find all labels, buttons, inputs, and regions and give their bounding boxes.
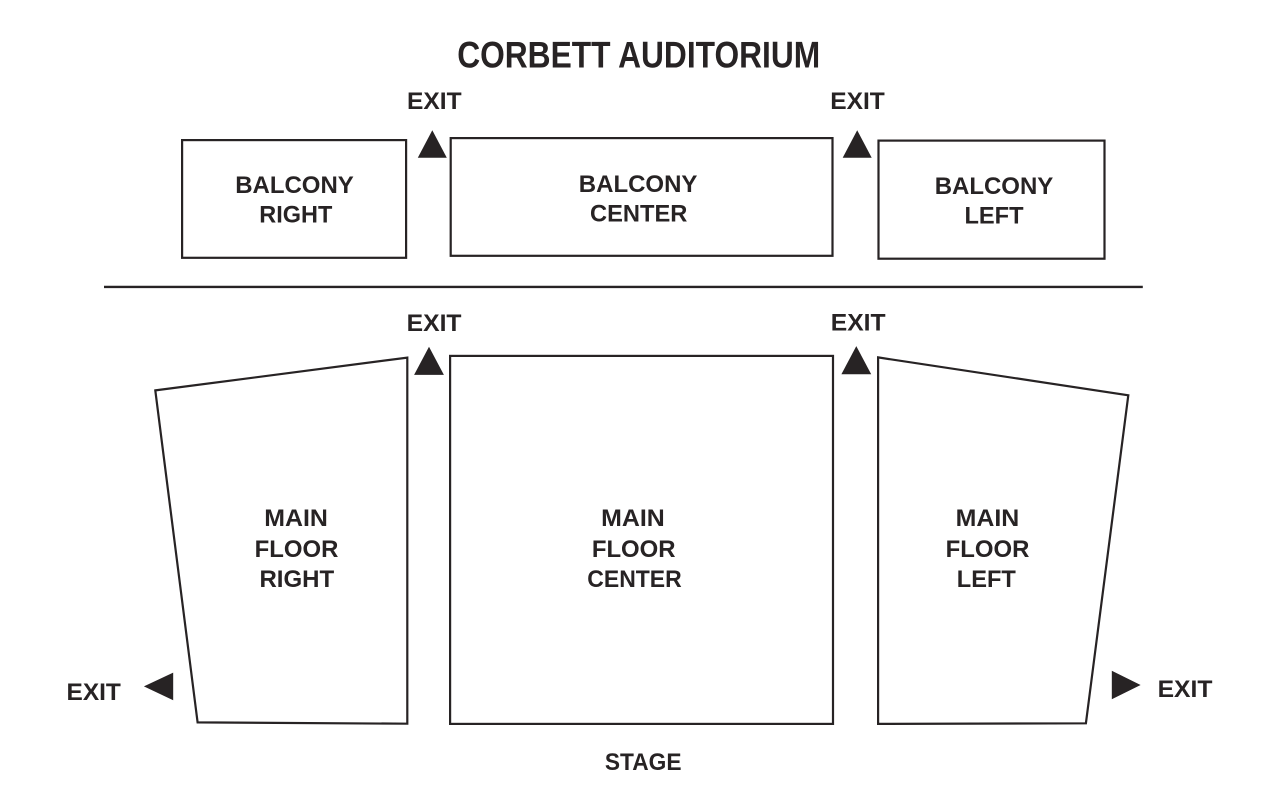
svg-text:CENTER: CENTER [590, 200, 688, 227]
svg-text:CENTER: CENTER [587, 566, 682, 593]
svg-text:MAIN: MAIN [264, 505, 328, 532]
svg-text:EXIT: EXIT [67, 679, 121, 706]
svg-text:BALCONY: BALCONY [579, 171, 698, 198]
svg-text:MAIN: MAIN [956, 505, 1020, 532]
svg-text:FLOOR: FLOOR [255, 536, 339, 563]
svg-text:EXIT: EXIT [407, 310, 462, 337]
svg-text:LEFT: LEFT [957, 566, 1016, 593]
svg-text:EXIT: EXIT [831, 310, 886, 337]
svg-text:FLOOR: FLOOR [592, 536, 676, 563]
svg-text:EXIT: EXIT [407, 88, 462, 115]
svg-text:STAGE: STAGE [605, 749, 682, 776]
svg-text:BALCONY: BALCONY [935, 173, 1054, 200]
svg-text:RIGHT: RIGHT [259, 566, 334, 593]
svg-text:FLOOR: FLOOR [946, 536, 1030, 563]
svg-text:RIGHT: RIGHT [259, 201, 332, 228]
svg-text:CORBETT AUDITORIUM: CORBETT AUDITORIUM [457, 35, 820, 76]
svg-text:MAIN: MAIN [601, 505, 665, 532]
svg-text:EXIT: EXIT [1158, 676, 1213, 703]
svg-text:BALCONY: BALCONY [235, 172, 354, 199]
svg-text:LEFT: LEFT [965, 202, 1024, 229]
svg-text:EXIT: EXIT [830, 88, 885, 115]
